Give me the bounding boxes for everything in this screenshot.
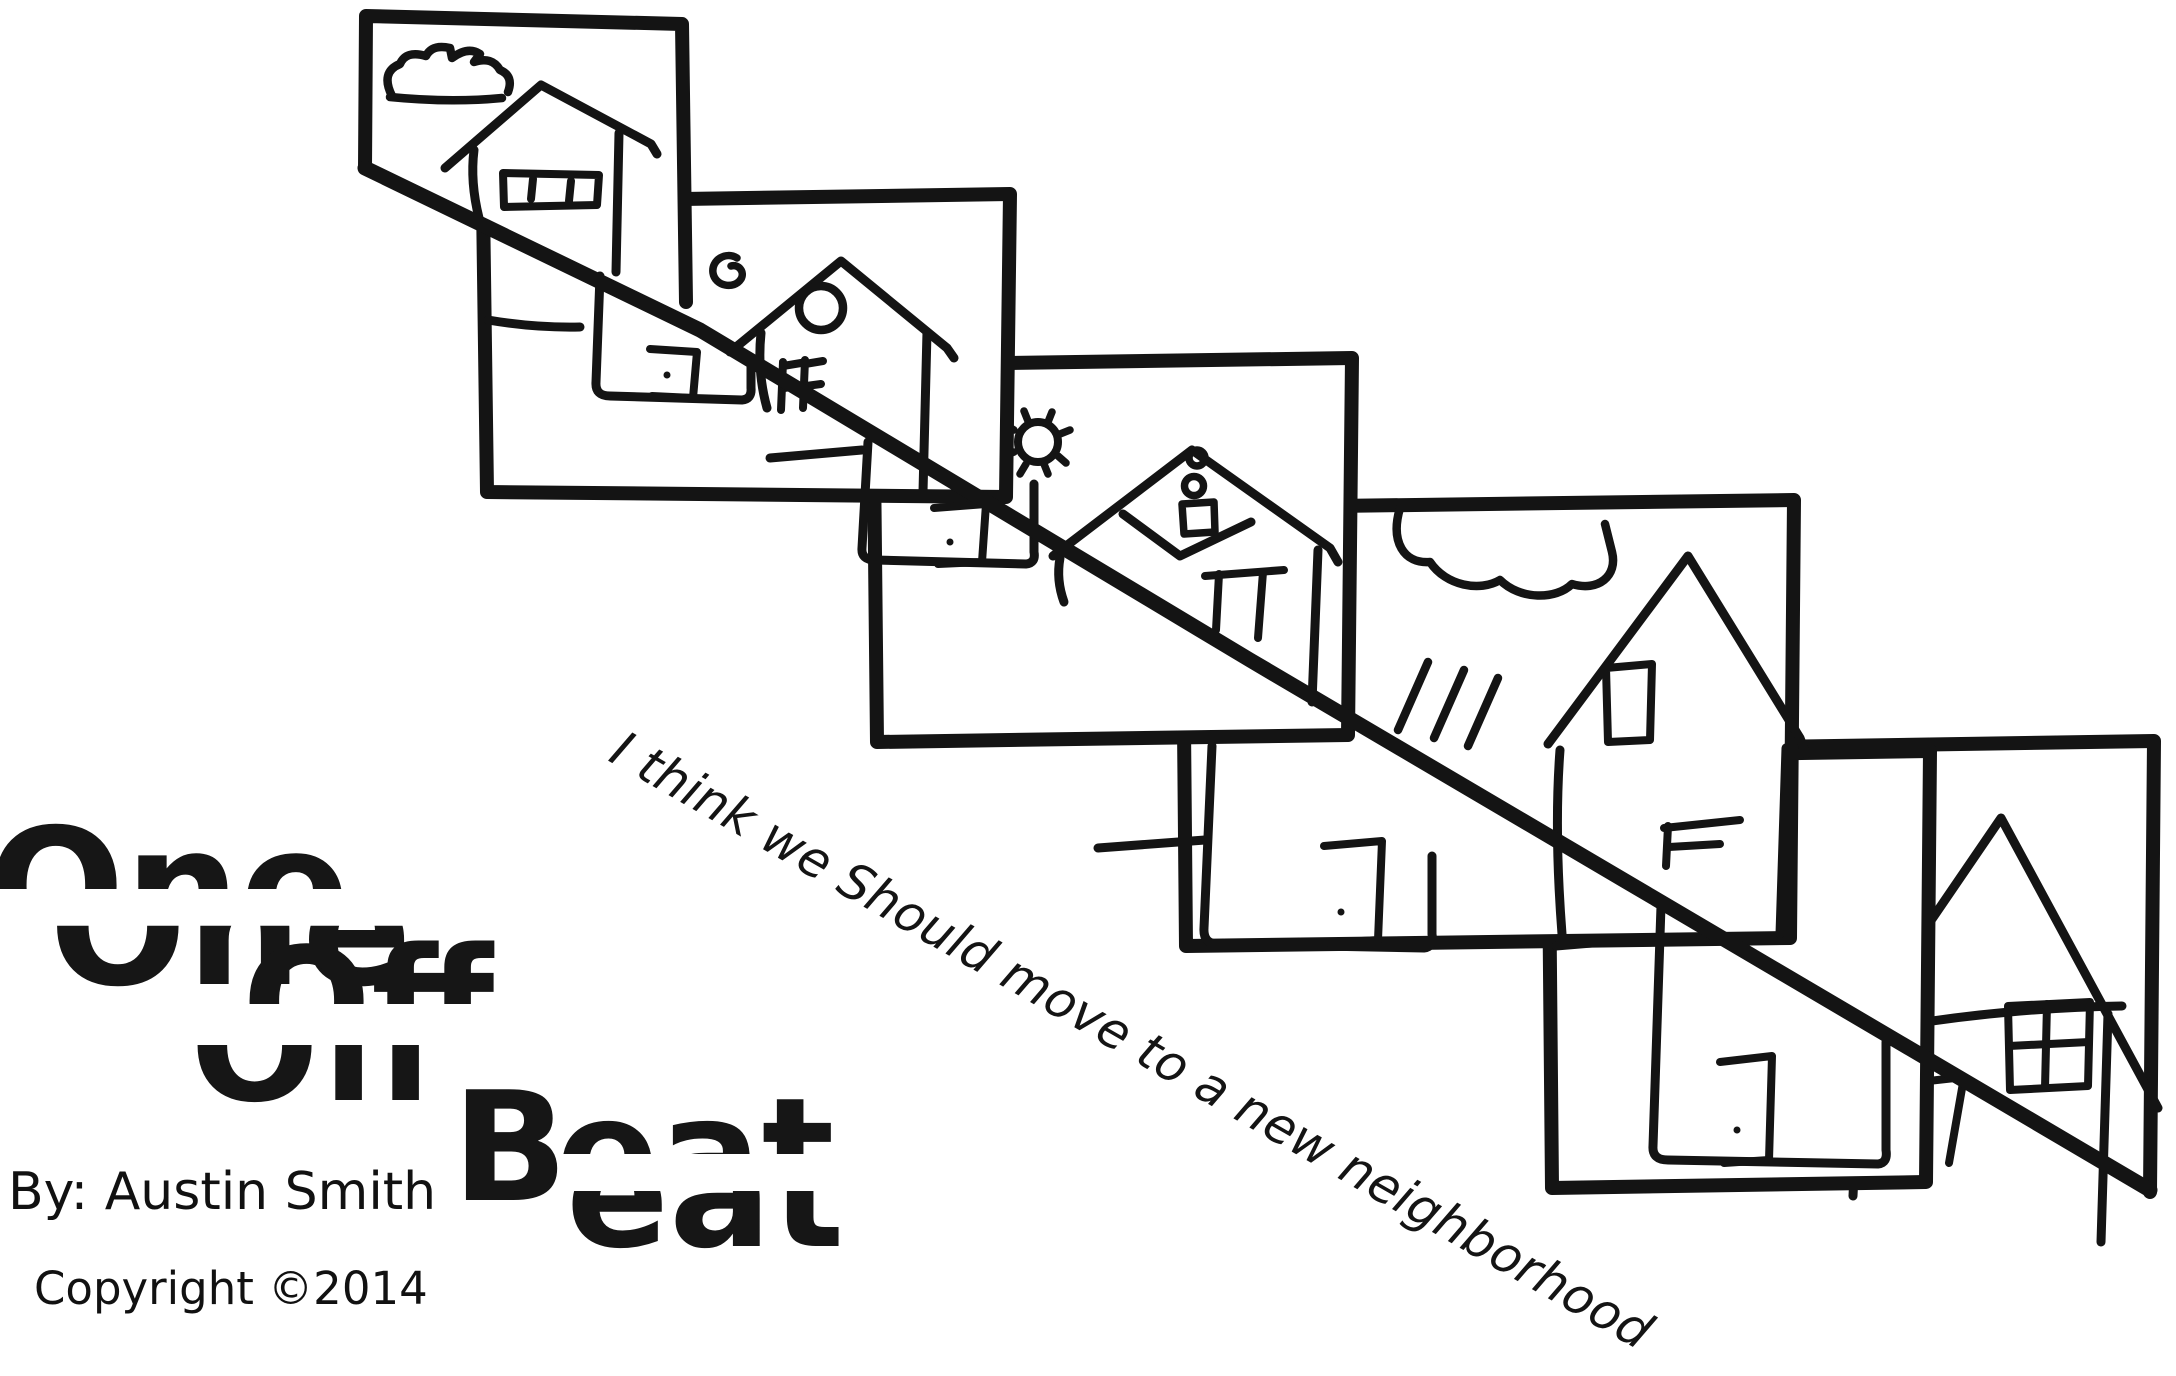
house-3-door-knob: [1338, 909, 1345, 916]
byline: By: Austin Smith: [8, 1162, 436, 1222]
copyright-notice: Copyright ©2014: [34, 1262, 428, 1315]
house-1-door-knob: [664, 372, 671, 379]
house-2-door-knob: [947, 539, 954, 546]
house-3-left-wall: [1059, 558, 1064, 602]
house-4-right-wall: [1780, 748, 1786, 934]
house-3-right-wall: [1312, 550, 1318, 702]
house-1-right-wall: [616, 133, 619, 272]
house-4-door-knob: [1734, 1127, 1741, 1134]
comic-page: I think we Should move to a new neighbor…: [0, 0, 2176, 1376]
title-word-beat-initial: B: [452, 1072, 568, 1224]
